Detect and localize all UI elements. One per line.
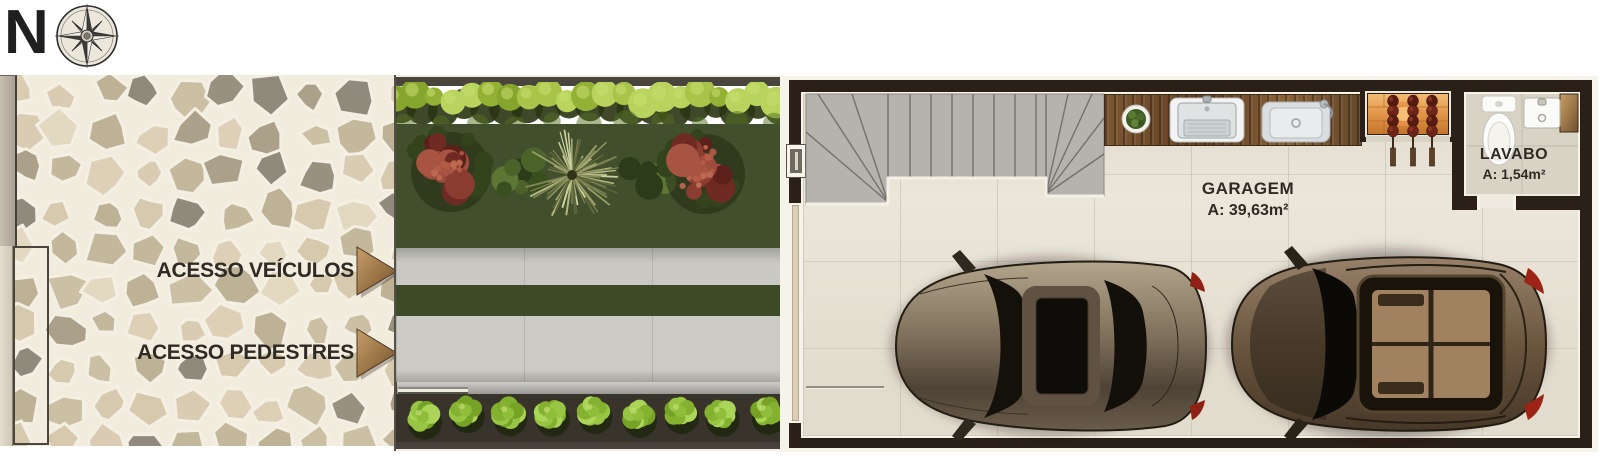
potted-plant bbox=[1122, 105, 1150, 133]
staircase bbox=[804, 92, 1106, 206]
lavabo-door-opening bbox=[1479, 196, 1515, 208]
floor-plan: N ACESSO VEÍCULOS ACESSO PEDESTRES bbox=[0, 0, 1600, 460]
sidewalk-strip-upper bbox=[0, 75, 17, 246]
vehicle-access-label: ACESSO VEÍCULOS bbox=[104, 259, 354, 283]
facade-window-slat bbox=[795, 152, 798, 170]
lavabo-room-label: LAVABO A: 1,54m² bbox=[1458, 146, 1570, 182]
kitchen-sink bbox=[1262, 100, 1332, 142]
driveway-slab-upper bbox=[396, 248, 780, 285]
compass-rose-icon bbox=[54, 2, 120, 70]
suv-car bbox=[1228, 246, 1548, 442]
counter-fixtures bbox=[1104, 94, 1362, 146]
garden-plants bbox=[396, 120, 780, 252]
garage-name: GARAGEM bbox=[1148, 179, 1348, 199]
compass-north-label: N bbox=[4, 2, 47, 64]
sedan-car bbox=[892, 250, 1208, 442]
laundry-tank-sink bbox=[1170, 96, 1244, 142]
lavabo-wood-shelf bbox=[1560, 94, 1578, 132]
hedge-row-bottom bbox=[396, 388, 780, 448]
garden-bottom-wall bbox=[396, 442, 780, 451]
garage-area: A: 39,63m² bbox=[1148, 202, 1348, 220]
pedestrian-path-outline bbox=[13, 246, 49, 445]
barbecue-grill bbox=[1358, 84, 1458, 180]
washbasin bbox=[1524, 98, 1560, 128]
lavabo-area: A: 1,54m² bbox=[1458, 166, 1570, 182]
pedestrian-access-label: ACESSO PEDESTRES bbox=[104, 341, 354, 365]
front-garden bbox=[396, 75, 780, 451]
sidewalk-strip-lower bbox=[0, 246, 13, 446]
parked-cars bbox=[860, 234, 1560, 448]
grass-strip bbox=[396, 285, 780, 316]
garage-room-label: GARAGEM A: 39,63m² bbox=[1148, 179, 1348, 220]
garage-door-threshold bbox=[792, 205, 799, 421]
lavabo-name: LAVABO bbox=[1458, 146, 1570, 164]
lavabo-room bbox=[1452, 78, 1582, 212]
